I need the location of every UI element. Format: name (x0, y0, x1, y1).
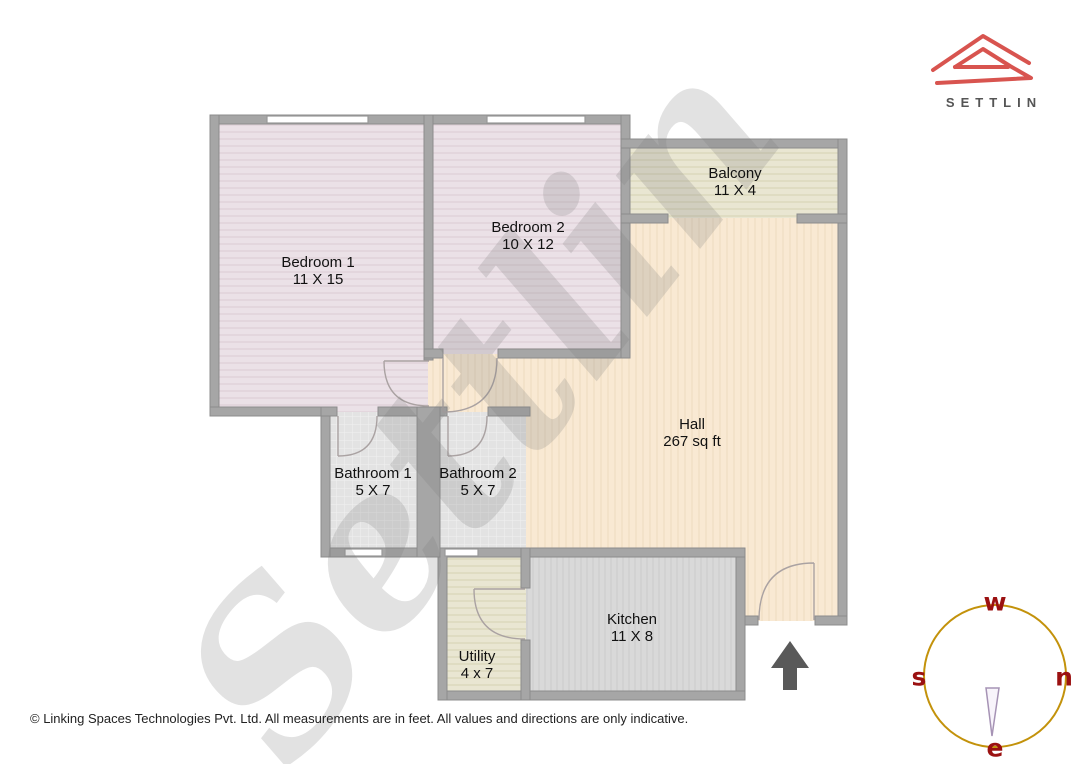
room-name: Bathroom 2 (439, 465, 517, 482)
room-name: Hall (663, 416, 721, 433)
compass (924, 605, 1066, 747)
room-dims: 4 x 7 (459, 665, 496, 682)
compass-east-label: e (987, 734, 1004, 763)
compass-south-label: s (912, 663, 927, 692)
entrance-arrow-icon (771, 641, 809, 690)
room-dims: 10 X 12 (491, 236, 564, 253)
compass-circle (924, 605, 1066, 747)
compass-north-label: n (1055, 663, 1073, 692)
room-dims: 11 X 4 (708, 182, 761, 199)
bathroom1-window (345, 549, 382, 556)
room-label-hall: Hall 267 sq ft (663, 416, 721, 450)
room-dims: 267 sq ft (663, 433, 721, 450)
room-dims: 11 X 15 (281, 271, 354, 288)
copyright-note: © Linking Spaces Technologies Pvt. Ltd. … (30, 711, 688, 726)
floor-plan-drawing (0, 0, 1080, 764)
room-name: Bedroom 2 (491, 219, 564, 236)
room-name: Kitchen (607, 611, 657, 628)
room-name: Utility (459, 648, 496, 665)
room-label-bedroom2: Bedroom 2 10 X 12 (491, 219, 564, 253)
settlin-logo-icon (933, 36, 1031, 83)
room-dims: 5 X 7 (439, 482, 517, 499)
bedroom1-window (267, 116, 368, 123)
settlin-logo-text: SETTLIN (940, 95, 1042, 110)
room-name: Bathroom 1 (334, 465, 412, 482)
utility-window (445, 549, 478, 556)
room-label-bedroom1: Bedroom 1 11 X 15 (281, 254, 354, 288)
room-name: Bedroom 1 (281, 254, 354, 271)
room-label-bathroom1: Bathroom 1 5 X 7 (334, 465, 412, 499)
room-label-kitchen: Kitchen 11 X 8 (607, 611, 657, 645)
room-label-utility: Utility 4 x 7 (459, 648, 496, 682)
floorplan-page: Settlin Bedroom 1 11 X 15 Bedroom 2 10 X… (0, 0, 1080, 764)
room-dims: 11 X 8 (607, 628, 657, 645)
room-label-balcony: Balcony 11 X 4 (708, 165, 761, 199)
room-label-bathroom2: Bathroom 2 5 X 7 (439, 465, 517, 499)
bedroom2-window (487, 116, 585, 123)
room-name: Balcony (708, 165, 761, 182)
compass-west-label: w (983, 588, 1006, 617)
room-dims: 5 X 7 (334, 482, 412, 499)
compass-needle-icon (986, 688, 999, 736)
